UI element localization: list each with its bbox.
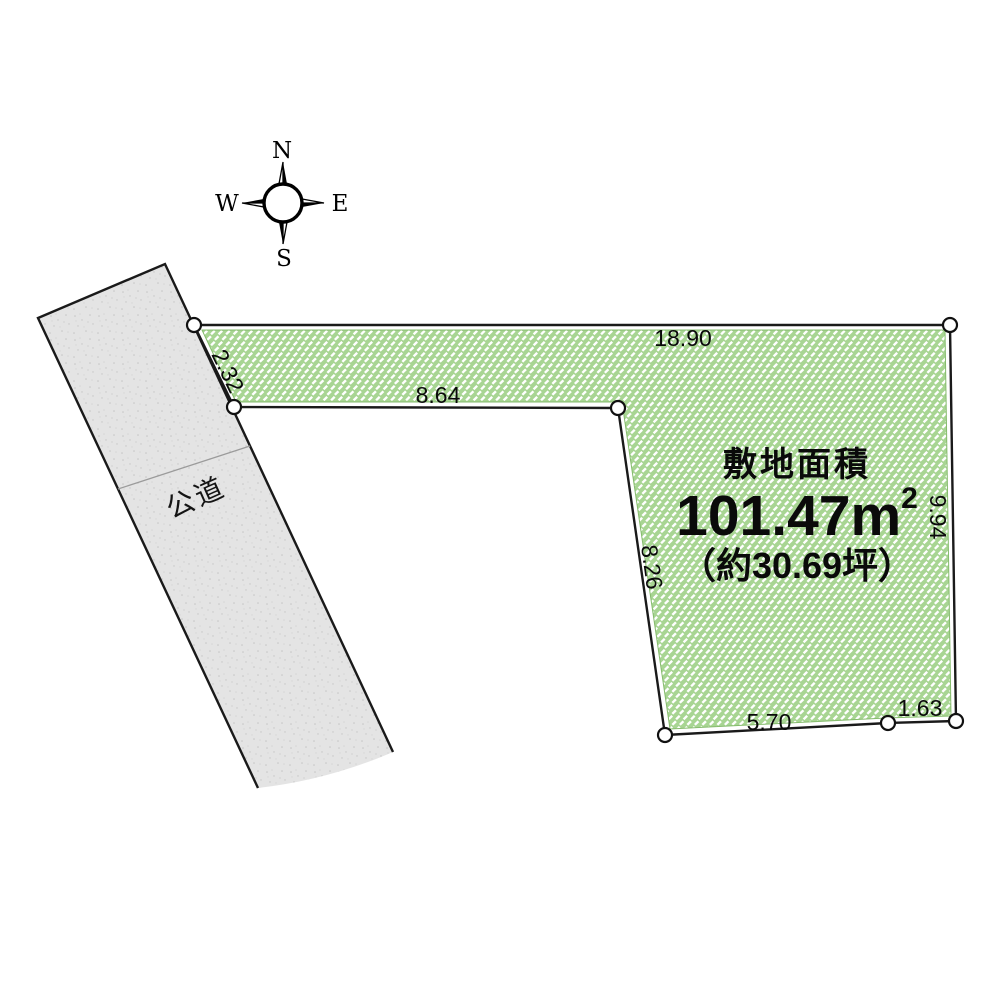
dimension-right: 9.94 xyxy=(925,495,951,540)
compass-rose: N E S W xyxy=(215,138,348,272)
area-value-exponent: 2 xyxy=(901,482,918,515)
plot-vertex-ne xyxy=(943,318,957,332)
land-plot-diagram: 公道 敷地面積 101.47m2 （約30.69坪） 18.90 8.64 2.… xyxy=(0,0,1000,1000)
plot-vertex-s xyxy=(881,716,895,730)
compass-star xyxy=(242,162,324,244)
area-tsubo: （約30.69坪） xyxy=(680,545,914,586)
compass-label-south: S xyxy=(276,246,292,272)
compass-label-north: N xyxy=(272,138,292,164)
dimension-top: 18.90 xyxy=(654,325,712,351)
compass-circle xyxy=(264,184,302,222)
dimension-inner-top: 8.64 xyxy=(416,382,461,408)
area-value-unit: m xyxy=(850,484,901,548)
plot-vertex-w xyxy=(227,400,241,414)
plot-vertex-sw xyxy=(658,728,672,742)
area-title: 敷地面積 xyxy=(723,446,871,484)
compass-label-west: W xyxy=(215,191,239,217)
compass-label-east: E xyxy=(332,191,349,217)
dimension-bottom-right: 1.63 xyxy=(898,695,943,721)
dimension-bottom: 5.70 xyxy=(747,709,792,735)
plot-vertex-nw xyxy=(187,318,201,332)
plot-vertex-inner xyxy=(611,401,625,415)
diagram-canvas: 公道 敷地面積 101.47m2 （約30.69坪） 18.90 8.64 2.… xyxy=(0,0,1000,1000)
plot-vertex-se xyxy=(949,714,963,728)
dimension-inner-left: 8.26 xyxy=(636,543,668,591)
area-value-number: 101.47 xyxy=(676,484,850,548)
area-value: 101.47m2 xyxy=(676,482,918,548)
